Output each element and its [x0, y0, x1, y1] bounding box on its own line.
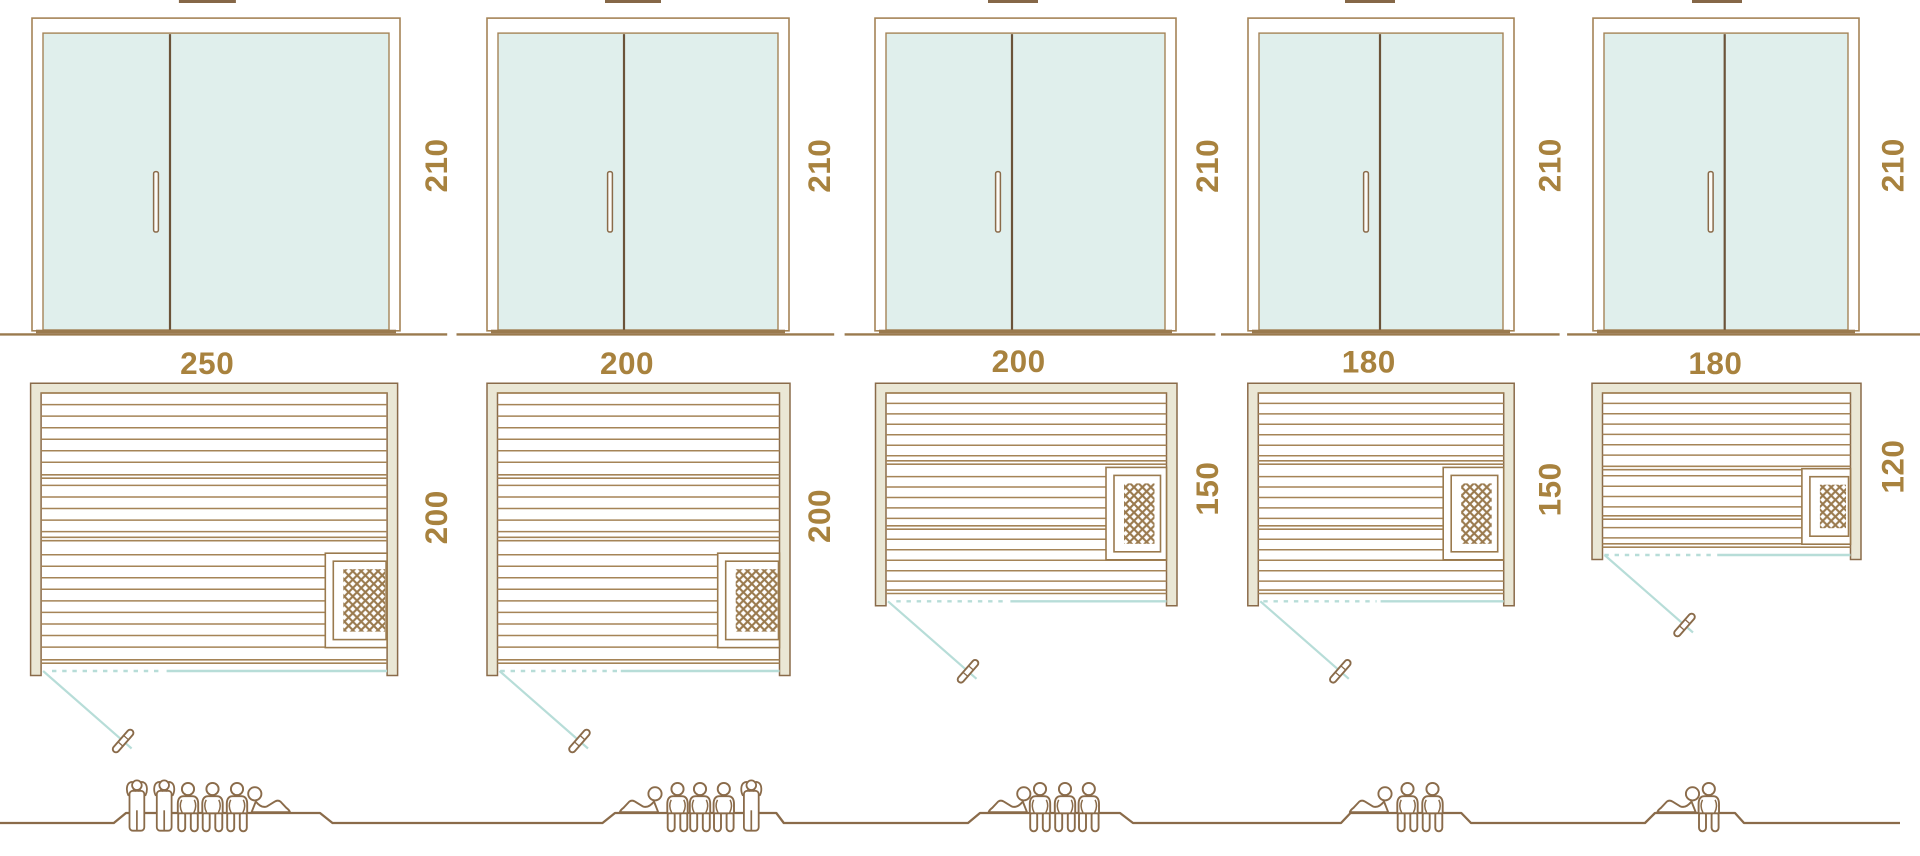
svg-text:180: 180: [1342, 344, 1396, 380]
svg-text:120: 120: [1875, 440, 1911, 494]
svg-text:210: 210: [1875, 138, 1911, 192]
svg-text:150: 150: [1532, 462, 1568, 516]
svg-text:210: 210: [1189, 139, 1225, 193]
svg-text:180: 180: [1688, 345, 1742, 381]
svg-text:210: 210: [1532, 138, 1568, 192]
svg-text:210: 210: [418, 138, 454, 192]
svg-text:150: 150: [1189, 462, 1225, 516]
svg-text:200: 200: [600, 345, 654, 381]
svg-text:200: 200: [801, 489, 837, 543]
svg-text:200: 200: [418, 490, 454, 544]
svg-text:250: 250: [180, 345, 234, 381]
svg-text:200: 200: [992, 343, 1046, 379]
svg-text:210: 210: [801, 139, 837, 193]
